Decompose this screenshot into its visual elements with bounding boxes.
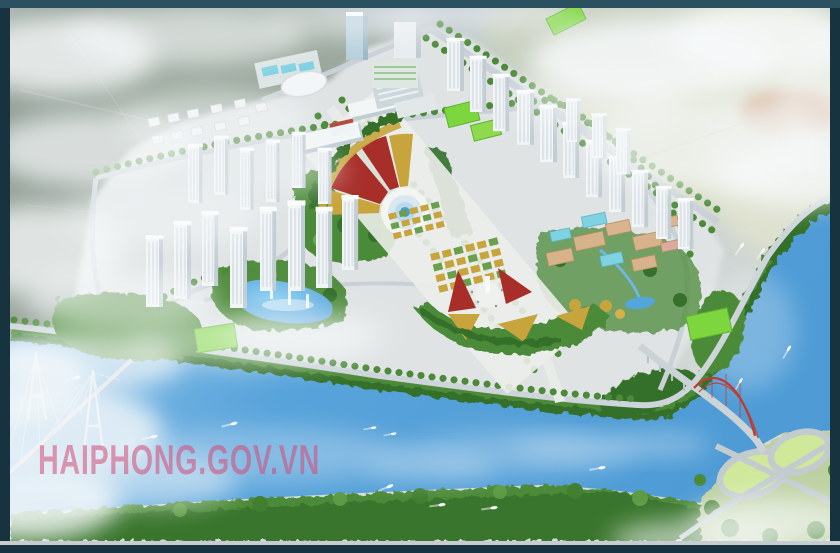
frame-top bbox=[0, 0, 840, 8]
tower bbox=[470, 56, 487, 112]
frame-bottom bbox=[0, 545, 840, 553]
fountain-jet bbox=[306, 294, 309, 308]
striped-slab bbox=[372, 62, 418, 88]
frame-left bbox=[0, 8, 10, 545]
tower bbox=[288, 200, 306, 291]
tower bbox=[316, 207, 333, 288]
tower bbox=[342, 195, 359, 270]
rendering-canvas: HAIPHONG.GOV.VN bbox=[0, 0, 840, 553]
tower bbox=[678, 198, 694, 249]
watermark-text: HAIPHONG.GOV.VN bbox=[38, 436, 320, 483]
haiphong-aerial-rendering: HAIPHONG.GOV.VN bbox=[0, 0, 840, 553]
monument-statue bbox=[485, 276, 490, 293]
tower bbox=[493, 74, 510, 132]
frame-right bbox=[830, 8, 840, 545]
tower bbox=[447, 38, 465, 91]
frame-bottom-line bbox=[0, 541, 840, 545]
tower bbox=[656, 186, 672, 239]
fountain-jet bbox=[288, 289, 291, 305]
